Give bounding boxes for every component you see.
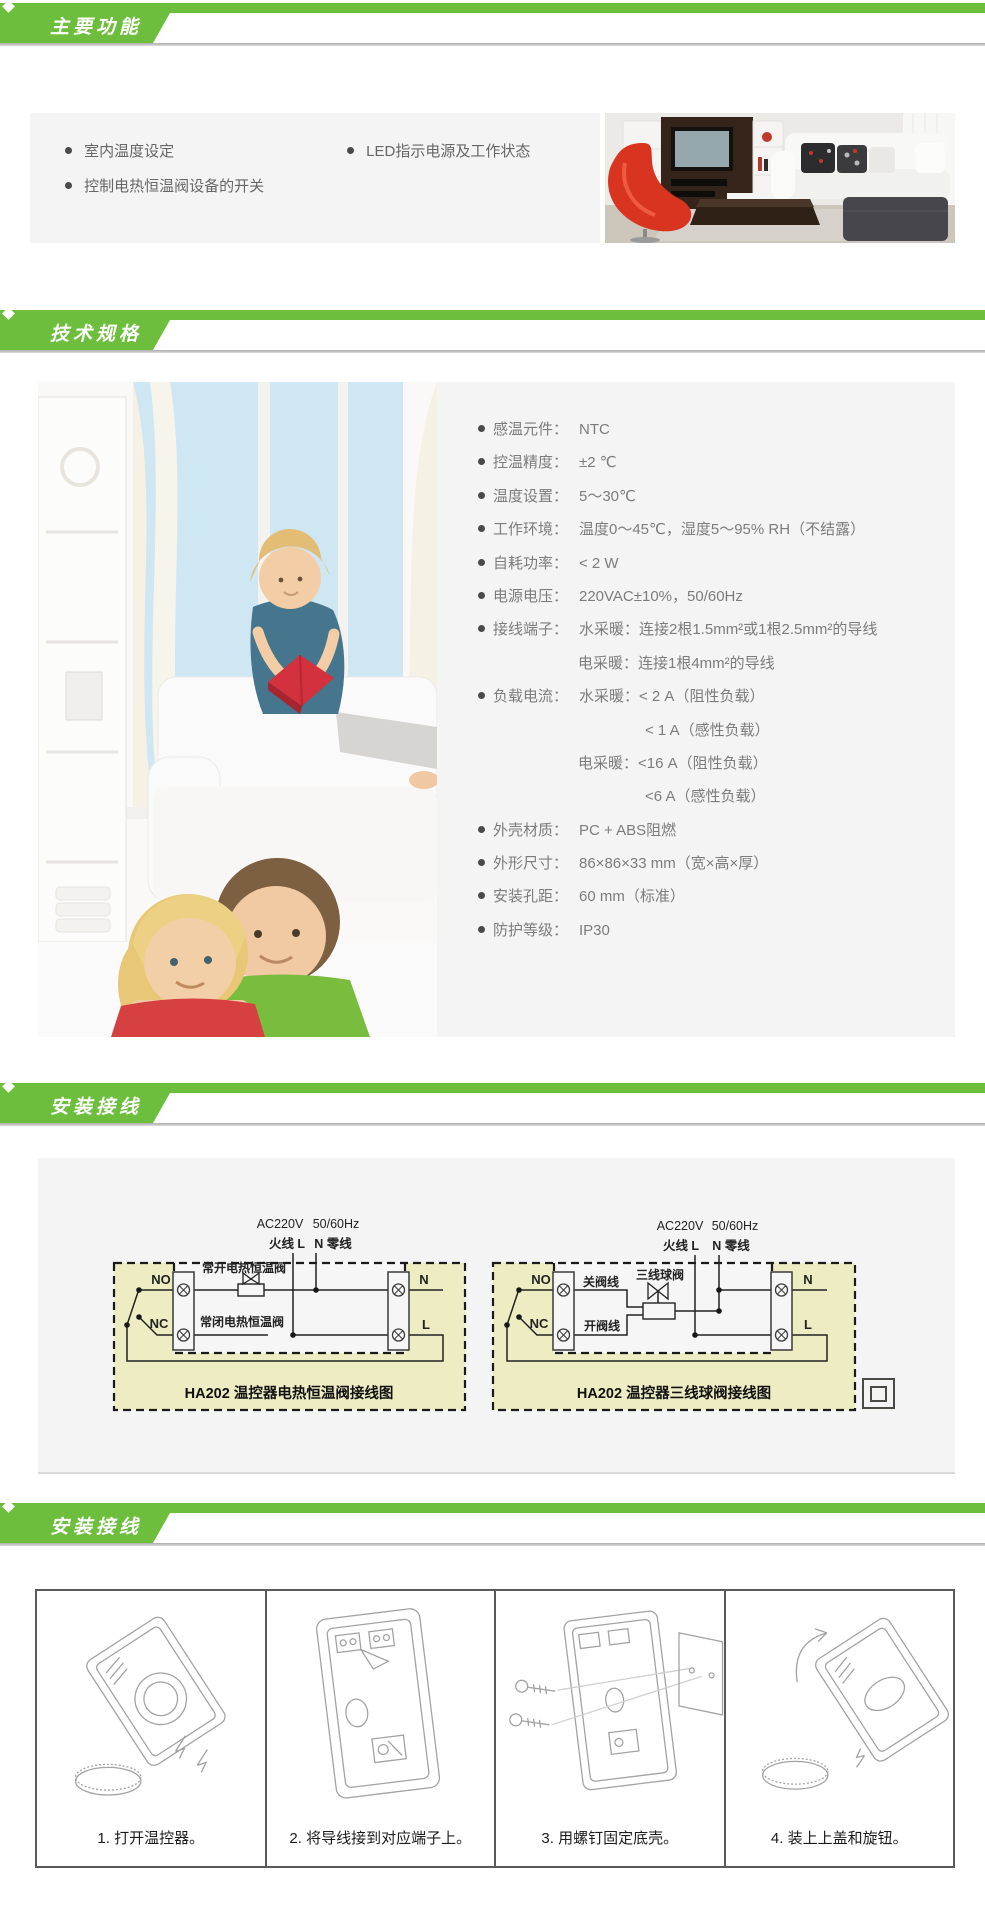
spec-value: 86×86×33 mm（宽×高×厚） (579, 855, 768, 872)
install-step-2: 2. 将导线接到对应端子上。 (265, 1591, 495, 1866)
neutral-label: N 零线 (314, 1236, 352, 1251)
open-wire-label: 开阀线 (584, 1318, 620, 1333)
l-label: L (804, 1317, 812, 1332)
spec-label: 电源电压： (493, 580, 579, 613)
spec-row: 电源电压：220VAC±10%，50/60Hz (465, 580, 945, 613)
spec-value: 温度0～45℃，湿度5～95% RH（不结露） (579, 521, 865, 538)
header-title-block: 主要功能 (0, 13, 170, 43)
bullet-icon (478, 559, 485, 566)
bullet-icon (478, 892, 485, 899)
family-reading-photo (38, 382, 437, 1037)
step-number: 1. (97, 1830, 110, 1847)
step-text: 打开温控器。 (114, 1830, 204, 1847)
spec-value: 电采暖：<16 A（阻性负载） (578, 755, 768, 772)
n-label: N (803, 1272, 812, 1287)
valve-no-label: 常开电热恒温阀 (202, 1260, 286, 1275)
ac-label: AC220V (657, 1219, 704, 1233)
bullet-icon (478, 458, 485, 465)
spec-value: <6 A（感性负载） (645, 788, 765, 805)
wiring-panel: AC220V 50/60Hz 火线 L N 零线 (38, 1158, 955, 1474)
section-header-features: 主要功能 (0, 3, 985, 49)
bullet-icon (478, 625, 485, 632)
spec-row: 外壳材质：PC + ABS阻燃 (465, 814, 945, 847)
step1-illustration (37, 1591, 265, 1824)
spec-row: 防护等级：IP30 (465, 914, 945, 947)
spec-row: 负载电流：水采暖：< 2 A（阻性负载） (465, 680, 945, 713)
header-title: 安装接线 (0, 1513, 170, 1543)
ball-valve-label: 三线球阀 (636, 1267, 684, 1282)
product-detail-page: 主要功能 室内温度设定 控制电热恒温阀设备的开关 LED指示电源及工作状态 (0, 0, 985, 1924)
header-shadow (0, 43, 985, 46)
step-number: 2. (289, 1830, 302, 1847)
diagram-title: HA202 温控器三线球阀接线图 (577, 1384, 771, 1402)
install-step-3: 3. 用螺钉固定底壳。 (494, 1591, 724, 1866)
bullet-icon (65, 182, 72, 189)
header-title-block: 安装接线 (0, 1093, 170, 1123)
bullet-icon (478, 525, 485, 532)
close-wire-label: 关阀线 (583, 1274, 619, 1289)
step-caption: 2. 将导线接到对应端子上。 (267, 1824, 495, 1866)
features-panel: 室内温度设定 控制电热恒温阀设备的开关 LED指示电源及工作状态 (30, 113, 600, 243)
bullet-icon (478, 592, 485, 599)
feature-item: 室内温度设定 (65, 144, 174, 160)
header-title-block: 安装接线 (0, 1513, 170, 1543)
nc-label: NC (150, 1316, 169, 1331)
n-label: N (419, 1272, 428, 1287)
spec-row: 工作环境：温度0～45℃，湿度5～95% RH（不结露） (465, 513, 945, 546)
neutral-label: N 零线 (712, 1238, 750, 1253)
header-title: 安装接线 (0, 1093, 170, 1123)
l-label: L (422, 1317, 430, 1332)
specs-panel: 感温元件：NTC 控温精度：±2 ℃ 温度设置：5～30℃ 工作环境：温度0～4… (38, 382, 955, 1037)
live-label: 火线 L (663, 1238, 699, 1253)
ac-label: AC220V (257, 1217, 304, 1231)
step-caption: 3. 用螺钉固定底壳。 (496, 1824, 724, 1866)
spec-label: 防护等级： (493, 914, 579, 947)
spec-label: 工作环境： (493, 513, 579, 546)
class2-insulation-icon (862, 1378, 895, 1409)
spec-label: 自耗功率： (493, 547, 579, 580)
bullet-icon (478, 492, 485, 499)
spec-row: 控温精度：±2 ℃ (465, 446, 945, 479)
spec-row: 自耗功率：< 2 W (465, 547, 945, 580)
step-number: 4. (771, 1830, 784, 1847)
no-label: NO (531, 1272, 551, 1287)
spec-label: 控温精度： (493, 446, 579, 479)
spec-row: 感温元件：NTC (465, 413, 945, 446)
spec-row: 温度设置：5～30℃ (465, 480, 945, 513)
spec-label: 接线端子： (493, 613, 579, 646)
step-caption: 1. 打开温控器。 (37, 1824, 265, 1866)
section-header-install: 安装接线 (0, 1503, 985, 1549)
step4-illustration (726, 1591, 954, 1824)
living-room-photo (605, 113, 955, 243)
spec-list: 感温元件：NTC 控温精度：±2 ℃ 温度设置：5～30℃ 工作环境：温度0～4… (465, 413, 945, 947)
header-bar (0, 1083, 985, 1093)
hz-label: 50/60Hz (313, 1217, 360, 1231)
spec-value: 水采暖：< 2 A（阻性负载） (579, 688, 764, 705)
nc-label: NC (530, 1316, 549, 1331)
spec-value: 水采暖：连接2根1.5mm²或1根2.5mm²的导线 (579, 621, 877, 638)
feature-text: 控制电热恒温阀设备的开关 (84, 178, 264, 195)
step3-illustration (496, 1591, 724, 1824)
no-label: NO (151, 1272, 171, 1287)
spec-row: < 1 A（感性负载） (465, 714, 945, 747)
spec-value: < 2 W (579, 555, 619, 572)
spec-row: <6 A（感性负载） (465, 780, 945, 813)
step-text: 用螺钉固定底壳。 (558, 1830, 678, 1847)
bullet-icon (478, 826, 485, 833)
wiring-diagram-ball-valve: AC220V 50/60Hz 火线 L N 零线 (455, 1195, 865, 1425)
spec-value: IP30 (579, 922, 610, 939)
header-bar (0, 310, 985, 320)
bullet-icon (347, 147, 354, 154)
section-header-specs: 技术规格 (0, 310, 985, 356)
header-bar (0, 3, 985, 13)
spec-label: 温度设置： (493, 480, 579, 513)
spec-value: 60 mm（标准） (579, 888, 685, 905)
install-step-1: 1. 打开温控器。 (37, 1591, 265, 1866)
spec-value: ±2 ℃ (579, 454, 617, 471)
spec-label: 安装孔距： (493, 880, 579, 913)
spec-row: 接线端子：水采暖：连接2根1.5mm²或1根2.5mm²的导线 (465, 613, 945, 646)
spec-value: < 1 A（感性负载） (645, 722, 770, 739)
install-steps-table: 1. 打开温控器。 (35, 1589, 955, 1868)
spec-row: 电采暖：连接1根4mm²的导线 (465, 647, 945, 680)
diagram-title: HA202 温控器电热恒温阀接线图 (185, 1384, 394, 1402)
header-title-block: 技术规格 (0, 320, 170, 350)
wiring-diagram-thermal-valve: AC220V 50/60Hz 火线 L N 零线 (75, 1195, 475, 1425)
header-title: 技术规格 (0, 320, 170, 350)
bullet-icon (65, 147, 72, 154)
spec-label: 感温元件： (493, 413, 579, 446)
section-header-wiring: 安装接线 (0, 1083, 985, 1129)
feature-text: 室内温度设定 (84, 143, 174, 160)
step-number: 3. (541, 1830, 554, 1847)
header-title: 主要功能 (0, 13, 170, 43)
feature-item: LED指示电源及工作状态 (347, 144, 530, 160)
step-caption: 4. 装上上盖和旋钮。 (726, 1824, 954, 1866)
feature-item: 控制电热恒温阀设备的开关 (65, 179, 264, 195)
step-text: 将导线接到对应端子上。 (306, 1830, 471, 1847)
header-shadow (0, 1123, 985, 1126)
install-step-4: 4. 装上上盖和旋钮。 (724, 1591, 954, 1866)
bullet-icon (478, 425, 485, 432)
hz-label: 50/60Hz (712, 1219, 759, 1233)
header-shadow (0, 1543, 985, 1546)
spec-label: 负载电流： (493, 680, 579, 713)
header-shadow (0, 350, 985, 353)
live-label: 火线 L (269, 1236, 305, 1251)
feature-text: LED指示电源及工作状态 (366, 143, 530, 160)
spec-value: 220VAC±10%，50/60Hz (579, 588, 743, 605)
spec-row: 外形尺寸：86×86×33 mm（宽×高×厚） (465, 847, 945, 880)
step-text: 装上上盖和旋钮。 (788, 1830, 908, 1847)
spec-value: PC + ABS阻燃 (579, 822, 676, 839)
header-bar (0, 1503, 985, 1513)
spec-value: NTC (579, 421, 610, 438)
spec-row: 安装孔距：60 mm（标准） (465, 880, 945, 913)
bullet-icon (478, 859, 485, 866)
step2-illustration (267, 1591, 495, 1824)
valve-nc-label: 常闭电热恒温阀 (200, 1314, 284, 1329)
bullet-icon (478, 692, 485, 699)
spec-value: 电采暖：连接1根4mm²的导线 (578, 655, 775, 672)
bullet-icon (478, 926, 485, 933)
spec-row: 电采暖：<16 A（阻性负载） (465, 747, 945, 780)
spec-label: 外壳材质： (493, 814, 579, 847)
spec-label: 外形尺寸： (493, 847, 579, 880)
spec-value: 5～30℃ (579, 488, 636, 505)
